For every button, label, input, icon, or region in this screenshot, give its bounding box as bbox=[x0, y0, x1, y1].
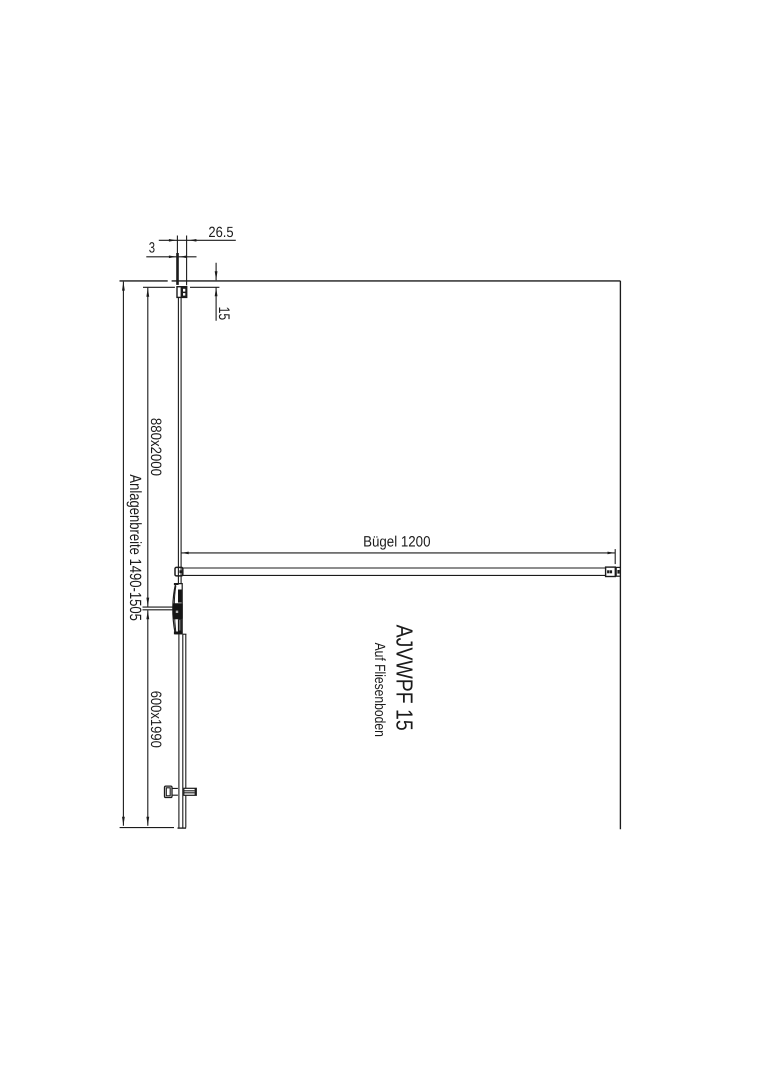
svg-text:Bügel 1200: Bügel 1200 bbox=[363, 534, 430, 551]
svg-text:Anlagenbreite 1490-1505: Anlagenbreite 1490-1505 bbox=[126, 474, 144, 621]
svg-text:15: 15 bbox=[215, 307, 232, 321]
svg-text:3: 3 bbox=[149, 241, 155, 257]
svg-text:600x1990: 600x1990 bbox=[147, 691, 164, 748]
svg-text:AJVWPF 15: AJVWPF 15 bbox=[391, 625, 417, 731]
svg-text:880x2000: 880x2000 bbox=[147, 418, 164, 476]
svg-text:Auf Fliesenboden: Auf Fliesenboden bbox=[371, 643, 387, 737]
svg-text:26.5: 26.5 bbox=[208, 225, 233, 241]
